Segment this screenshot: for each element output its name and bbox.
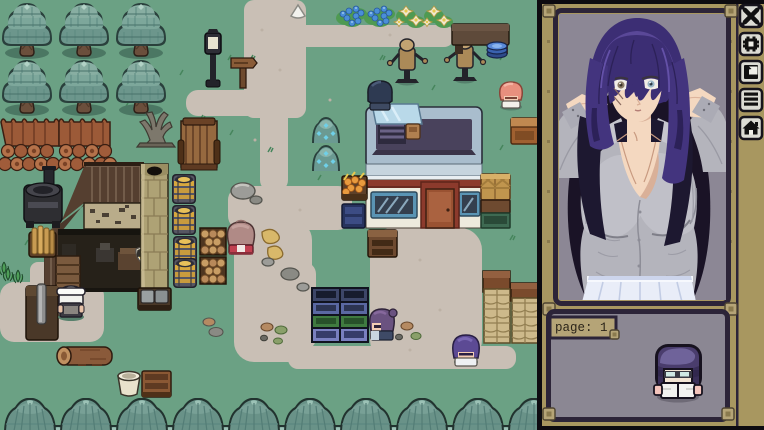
svg-text:page: 1: page: 1 [555, 321, 608, 335]
